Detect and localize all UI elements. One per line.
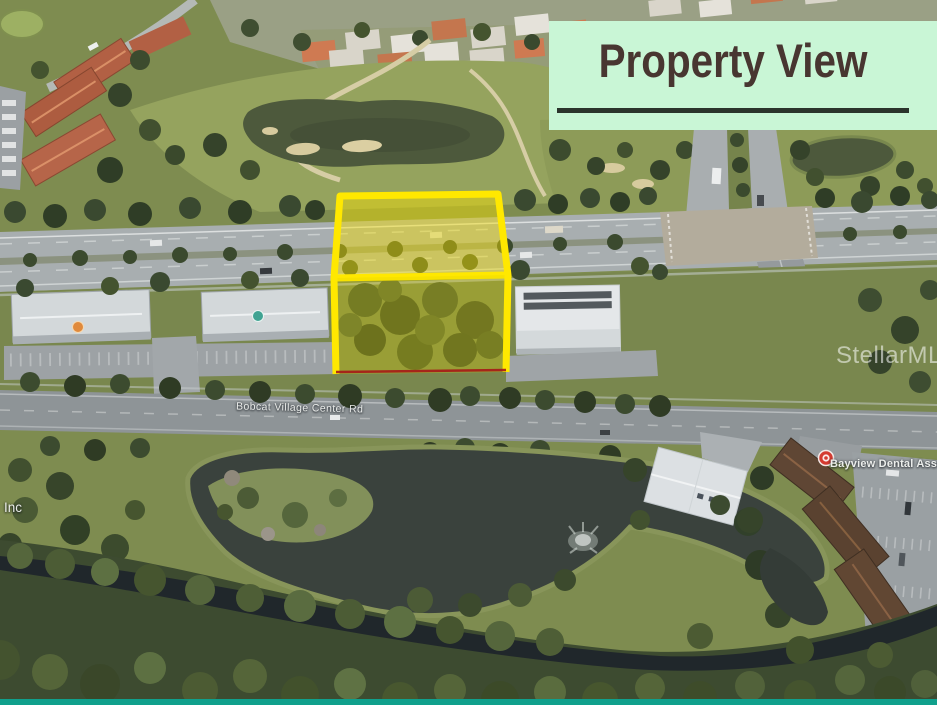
property-boundary-overlay [334, 194, 508, 374]
property-view-slide: Bobcat Village Center Rd Bayview Dental … [0, 0, 937, 705]
stellar-mls-watermark: StellarMLS [836, 342, 937, 370]
banner-underline [557, 108, 909, 113]
property-view-banner: Property View [549, 21, 937, 130]
bank-building [515, 285, 620, 355]
entrance-road [686, 128, 788, 216]
business-label: Bayview Dental Asso [830, 458, 937, 470]
bottom-teal-strip [0, 699, 937, 705]
partial-business-label: Inc [4, 500, 22, 515]
banner-title: Property View [575, 35, 891, 87]
teal-cupola-dot [253, 311, 264, 322]
orange-poi-dot [73, 322, 84, 333]
parcel-top-section [334, 194, 508, 278]
parcel-bottom-section [334, 275, 508, 374]
